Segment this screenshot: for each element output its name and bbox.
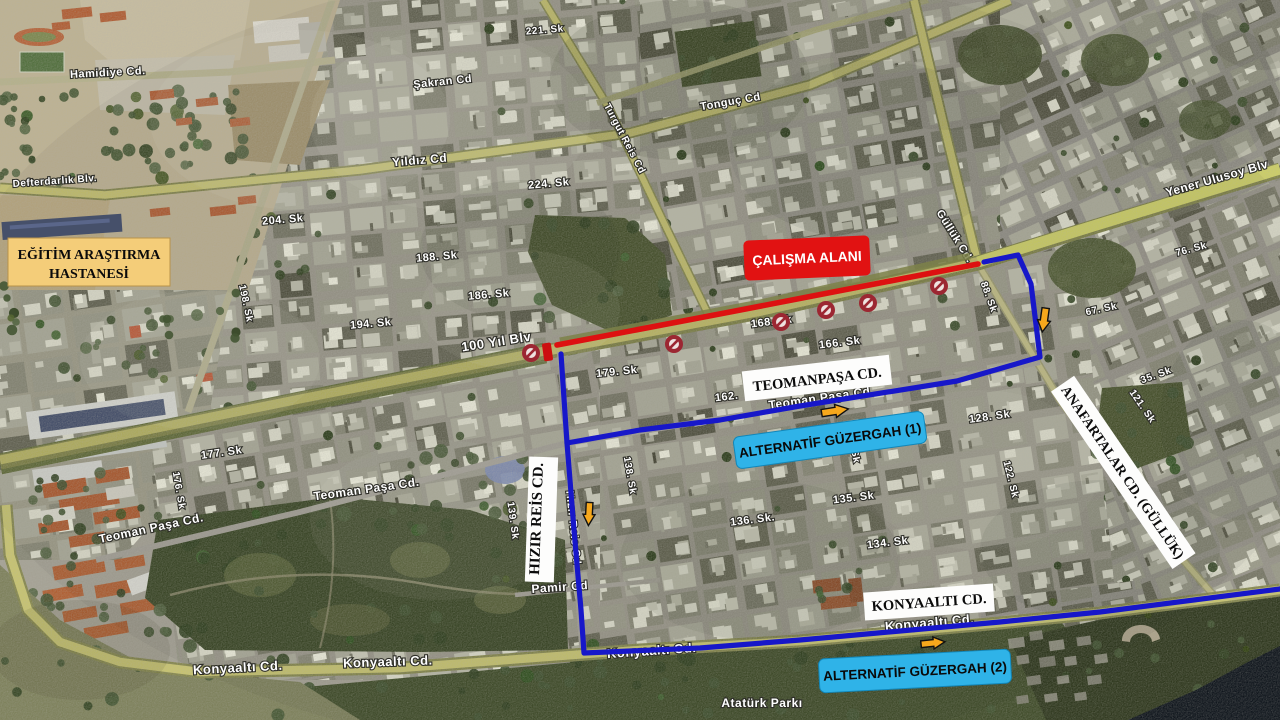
svg-text:EĞİTİM ARAŞTIRMA: EĞİTİM ARAŞTIRMA: [18, 246, 162, 263]
svg-text:Konyaaltı Cd.: Konyaaltı Cd.: [343, 652, 433, 670]
svg-text:Atatürk Parkı: Atatürk Parkı: [721, 696, 802, 710]
svg-text:HASTANESİ: HASTANESİ: [49, 265, 129, 282]
